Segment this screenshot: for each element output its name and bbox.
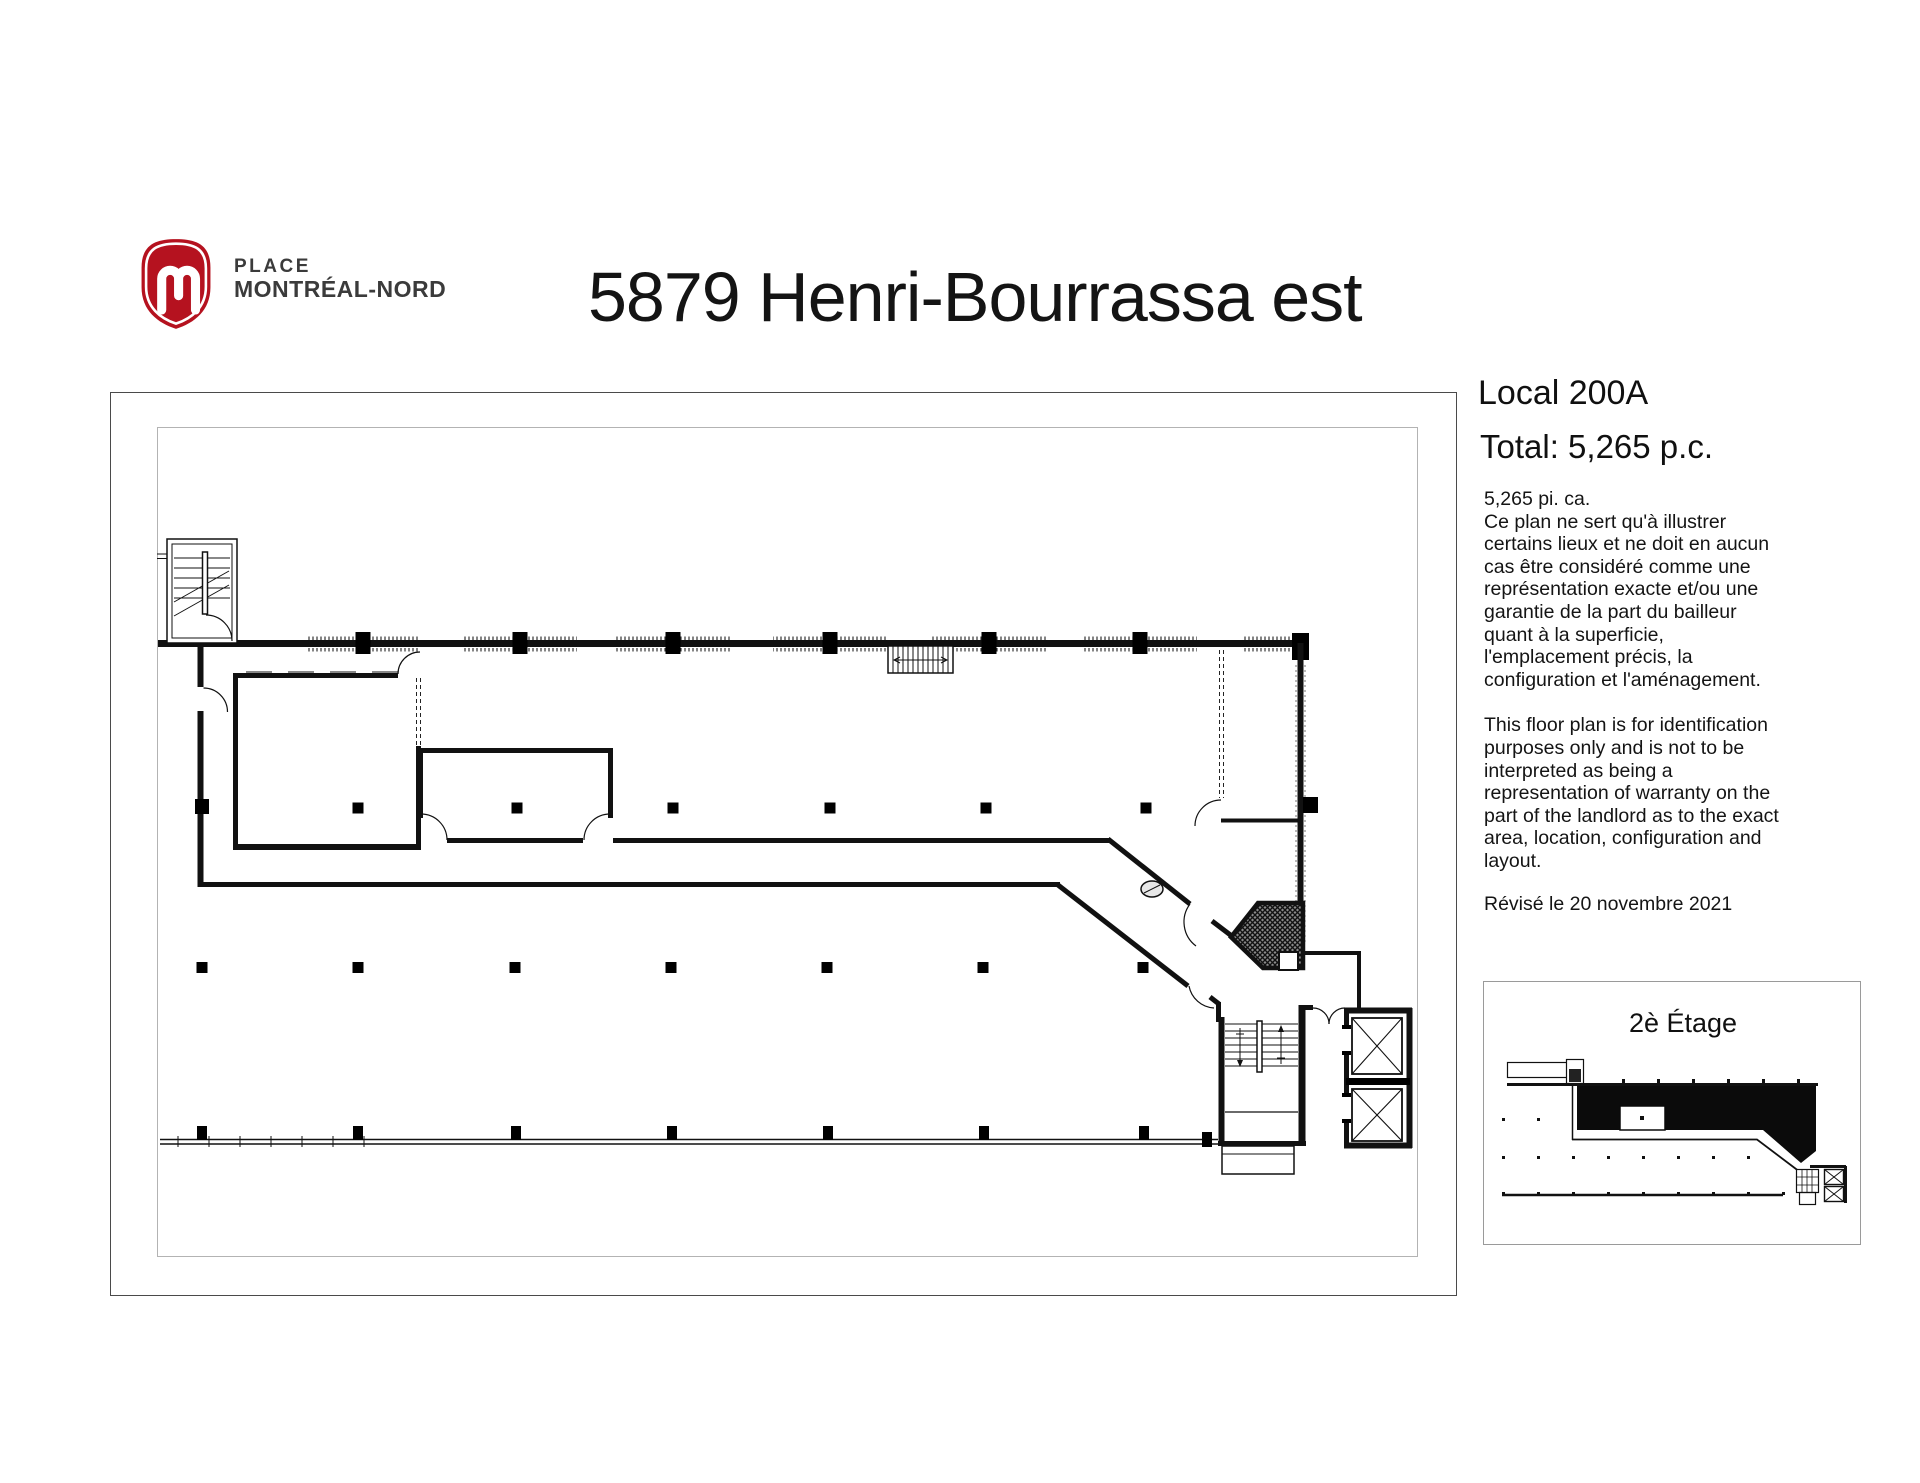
thumbnail-mini-plan (1484, 982, 1858, 1242)
west-wall (195, 647, 228, 887)
area-line: 5,265 pi. ca. (1484, 488, 1814, 511)
disclaimer-block: 5,265 pi. ca. Ce plan ne sert qu'à illus… (1484, 488, 1814, 915)
corridor-walls (198, 839, 1237, 1022)
brand-line1: PLACE (234, 256, 311, 278)
large-room (233, 652, 421, 849)
middle-room (416, 750, 613, 841)
south-wall (160, 1132, 1218, 1147)
total-label: Total: 5,265 p.c. (1480, 428, 1713, 466)
plan-walls (157, 539, 1412, 1174)
disclaimer-english: This floor plan is for identification pu… (1484, 714, 1814, 872)
ne-room (1195, 650, 1300, 826)
leased-area-highlight (1577, 1086, 1816, 1163)
se-core (1218, 953, 1412, 1174)
page-title: 5879 Henri-Bourrassa est (588, 262, 1362, 332)
floor-plan-document: { "header": { "brand": { "icon": "m-shie… (0, 0, 1920, 1483)
local-label: Local 200A (1478, 374, 1648, 413)
disclaimer-french: Ce plan ne sert qu'à illustrer certains … (1484, 511, 1814, 692)
mini-se-core (1797, 1166, 1847, 1205)
brand-line2: MONTRÉAL-NORD (234, 276, 446, 303)
m-shield-icon (137, 237, 215, 331)
nw-stairwell (157, 539, 237, 643)
shaft-hatched (1231, 903, 1303, 970)
ramp-hatch (888, 646, 953, 673)
elevators-icon (1342, 1008, 1412, 1148)
main-floor-plan (110, 392, 1458, 1297)
columns (197, 803, 1152, 1141)
revised-line: Révisé le 20 novembre 2021 (1484, 893, 1814, 916)
